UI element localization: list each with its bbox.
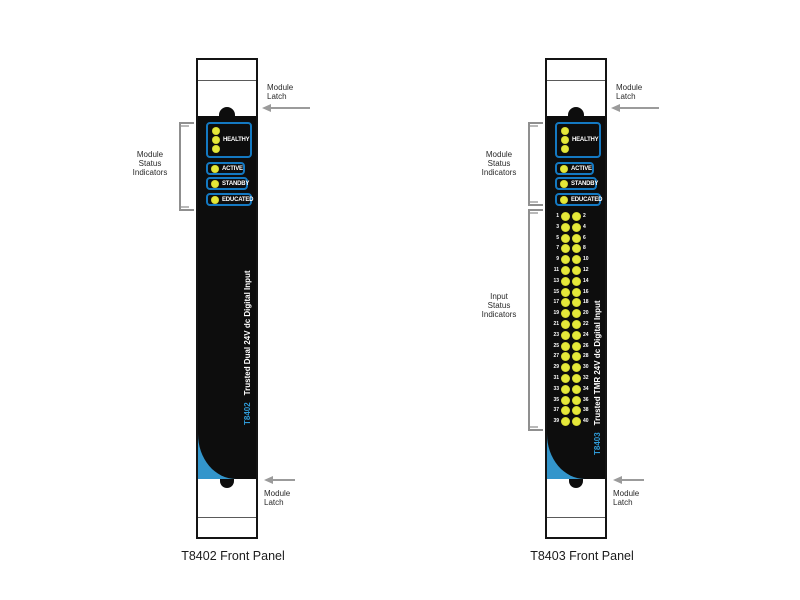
educated-led-icon (211, 196, 219, 204)
input-led-number-right: 4 (583, 224, 595, 230)
healthy-label: HEALTHY (572, 137, 599, 143)
input-led-icon (572, 266, 581, 275)
input-led-number-right: 6 (583, 235, 595, 241)
t8403-top-divider-line (547, 80, 605, 81)
t8402-bottom-latch-bump (220, 479, 234, 488)
educated-led-icon (560, 196, 568, 204)
input-led-number-left: 13 (547, 278, 559, 284)
input-led-icon (572, 374, 581, 383)
t8402-top-latch-arrow-icon (271, 107, 310, 109)
t8403-bottom-divider-line (547, 517, 605, 518)
input-led-icon (572, 223, 581, 232)
input-led-icon (572, 385, 581, 394)
t8403-bottom-latch-bump (569, 479, 583, 488)
input-led-row: 12 (547, 211, 605, 222)
t8402-bottom-divider-line (198, 517, 256, 518)
standby-indicator-box: STANDBY (206, 177, 248, 190)
t8403-bottom-latch-arrow-icon (622, 479, 644, 481)
input-led-icon (572, 363, 581, 372)
standby-indicator-box: STANDBY (555, 177, 597, 190)
input-led-icon (572, 331, 581, 340)
input-led-icon (561, 352, 570, 361)
input-led-icon (561, 320, 570, 329)
input-led-row: 910 (547, 254, 605, 265)
input-led-row: 1314 (547, 276, 605, 287)
input-led-number-left: 33 (547, 386, 559, 392)
input-led-number-right: 10 (583, 256, 595, 262)
standby-label: STANDBY (222, 181, 249, 187)
t8402-top-latch-bump (219, 107, 235, 116)
input-led-number-left: 11 (547, 267, 559, 273)
input-led-icon (561, 363, 570, 372)
input-led-number-right: 8 (583, 245, 595, 251)
input-led-icon (561, 298, 570, 307)
t8403-top-latch-arrow-icon (620, 107, 659, 109)
input-led-icon (572, 320, 581, 329)
t8403-module-latch-bottom-label: Module Latch (613, 489, 639, 507)
educated-indicator-box: EDUCATED (206, 193, 252, 206)
front-panel-diagram: HEALTHY ACTIVE STANDBY EDUCATED T8402Tru… (0, 0, 800, 600)
healthy-led-icon (212, 145, 220, 153)
input-led-icon (561, 417, 570, 426)
standby-led-icon (211, 180, 219, 188)
input-led-icon (561, 223, 570, 232)
input-led-icon (561, 212, 570, 221)
input-led-number-left: 7 (547, 245, 559, 251)
input-led-icon (561, 331, 570, 340)
input-led-number-left: 37 (547, 407, 559, 413)
input-led-icon (561, 255, 570, 264)
input-led-number-left: 35 (547, 397, 559, 403)
input-led-number-left: 27 (547, 353, 559, 359)
input-led-icon (561, 277, 570, 286)
t8402-top-divider-line (198, 80, 256, 81)
input-led-icon (572, 277, 581, 286)
healthy-indicator-box: HEALTHY (206, 122, 252, 158)
input-led-icon (561, 266, 570, 275)
input-led-number-right: 2 (583, 213, 595, 219)
active-indicator-box: ACTIVE (206, 162, 245, 175)
t8403-caption: T8403 Front Panel (482, 549, 682, 563)
input-led-icon (572, 298, 581, 307)
t8402-module-status-label: Module Status Indicators (90, 150, 210, 177)
input-led-number-left: 3 (547, 224, 559, 230)
input-led-number-left: 39 (547, 418, 559, 424)
standby-label: STANDBY (571, 181, 598, 187)
input-led-number-left: 1 (547, 213, 559, 219)
input-led-number-left: 21 (547, 321, 559, 327)
input-led-number-left: 29 (547, 364, 559, 370)
input-led-icon (572, 406, 581, 415)
input-led-icon (572, 255, 581, 264)
t8403-model-number: T8403 (593, 432, 602, 455)
input-led-row: 1112 (547, 265, 605, 276)
t8403-module-status-label: Module Status Indicators (439, 150, 559, 177)
t8402-bottom-latch-arrow-icon (273, 479, 295, 481)
input-led-icon (572, 352, 581, 361)
t8403-top-latch-bump (568, 107, 584, 116)
input-led-row: 34 (547, 222, 605, 233)
educated-label: EDUCATED (571, 197, 602, 203)
educated-indicator-box: EDUCATED (555, 193, 601, 206)
input-led-row: 78 (547, 243, 605, 254)
standby-led-icon (560, 180, 568, 188)
input-led-icon (561, 396, 570, 405)
input-led-icon (561, 244, 570, 253)
active-led-icon (560, 165, 568, 173)
t8402-model-description: Trusted Dual 24V dc Digital Input (243, 270, 252, 395)
input-led-number-left: 31 (547, 375, 559, 381)
input-led-number-left: 25 (547, 343, 559, 349)
educated-label: EDUCATED (222, 197, 253, 203)
input-led-icon (561, 342, 570, 351)
input-led-icon (572, 288, 581, 297)
input-led-icon (572, 396, 581, 405)
active-label: ACTIVE (222, 166, 243, 172)
input-led-number-right: 12 (583, 267, 595, 273)
input-led-icon (572, 244, 581, 253)
t8403-model-text: T8403Trusted TMR 24V dc Digital Input (593, 300, 603, 455)
healthy-indicator-box: HEALTHY (555, 122, 601, 158)
input-led-icon (561, 234, 570, 243)
t8402-module-latch-bottom-label: Module Latch (264, 489, 290, 507)
healthy-led-icon (561, 145, 569, 153)
healthy-label: HEALTHY (223, 137, 250, 143)
input-led-icon (561, 385, 570, 394)
healthy-led-icon (561, 127, 569, 135)
t8402-caption: T8402 Front Panel (133, 549, 333, 563)
t8403-module-latch-top-label: Module Latch (616, 83, 642, 101)
healthy-led-icon (212, 136, 220, 144)
t8403-input-status-bracket (528, 209, 541, 431)
t8403-input-status-label: Input Status Indicators (439, 292, 559, 319)
active-indicator-box: ACTIVE (555, 162, 594, 175)
input-led-icon (561, 406, 570, 415)
input-led-icon (572, 212, 581, 221)
input-led-icon (572, 234, 581, 243)
input-led-number-right: 14 (583, 278, 595, 284)
t8402-model-number: T8402 (243, 402, 252, 425)
t8402-model-text: T8402Trusted Dual 24V dc Digital Input (243, 270, 253, 425)
t8402-module-latch-top-label: Module Latch (267, 83, 293, 101)
input-led-number-left: 5 (547, 235, 559, 241)
input-led-icon (572, 342, 581, 351)
healthy-led-icon (212, 127, 220, 135)
input-led-number-left: 9 (547, 256, 559, 262)
active-led-icon (211, 165, 219, 173)
input-led-icon (561, 374, 570, 383)
input-led-icon (561, 309, 570, 318)
t8403-model-description: Trusted TMR 24V dc Digital Input (593, 300, 602, 425)
healthy-led-icon (561, 136, 569, 144)
active-label: ACTIVE (571, 166, 592, 172)
input-led-icon (572, 417, 581, 426)
input-led-icon (561, 288, 570, 297)
input-led-icon (572, 309, 581, 318)
input-led-row: 56 (547, 233, 605, 244)
input-led-number-left: 23 (547, 332, 559, 338)
input-led-number-right: 16 (583, 289, 595, 295)
